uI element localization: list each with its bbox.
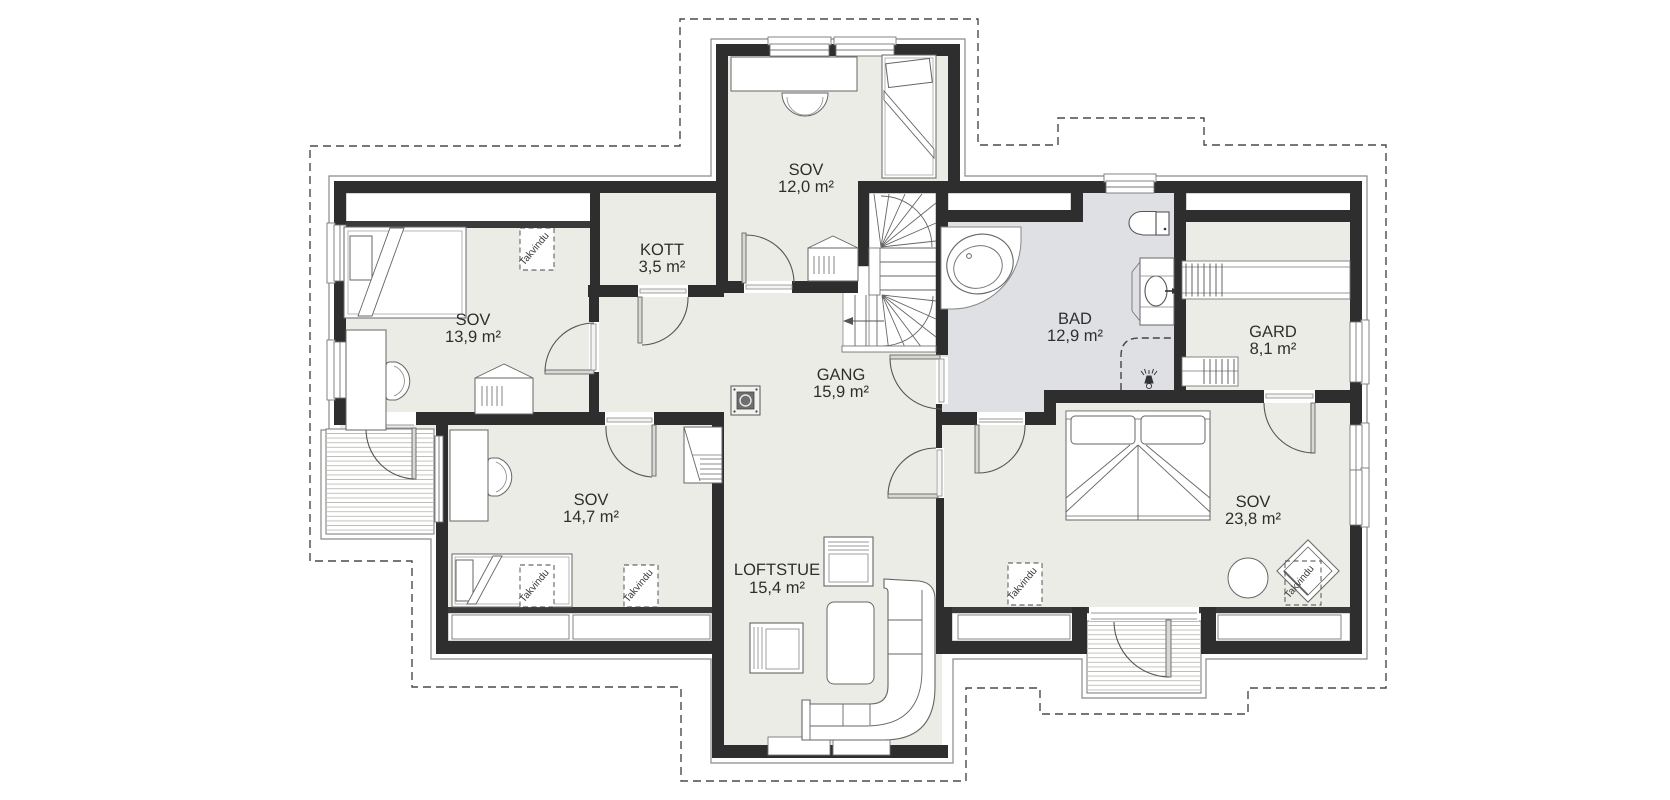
svg-text:SOV: SOV <box>1236 493 1271 511</box>
svg-text:12,0 m²: 12,0 m² <box>778 178 834 196</box>
svg-text:23,8 m²: 23,8 m² <box>1225 510 1281 528</box>
svg-text:SOV: SOV <box>789 161 824 179</box>
svg-text:SOV: SOV <box>574 491 609 509</box>
svg-text:KOTT: KOTT <box>640 241 684 259</box>
svg-text:15,4 m²: 15,4 m² <box>749 579 805 597</box>
svg-text:LOFTSTUE: LOFTSTUE <box>734 561 820 579</box>
svg-text:12,9 m²: 12,9 m² <box>1047 327 1103 345</box>
svg-text:13,9 m²: 13,9 m² <box>445 328 501 346</box>
svg-text:3,5 m²: 3,5 m² <box>639 258 686 276</box>
svg-text:14,7 m²: 14,7 m² <box>563 508 619 526</box>
svg-text:GANG: GANG <box>817 366 866 384</box>
svg-text:BAD: BAD <box>1058 310 1092 328</box>
svg-text:15,9 m²: 15,9 m² <box>813 383 869 401</box>
svg-text:8,1 m²: 8,1 m² <box>1250 340 1297 358</box>
svg-text:GARD: GARD <box>1249 323 1297 341</box>
svg-text:SOV: SOV <box>456 311 491 329</box>
